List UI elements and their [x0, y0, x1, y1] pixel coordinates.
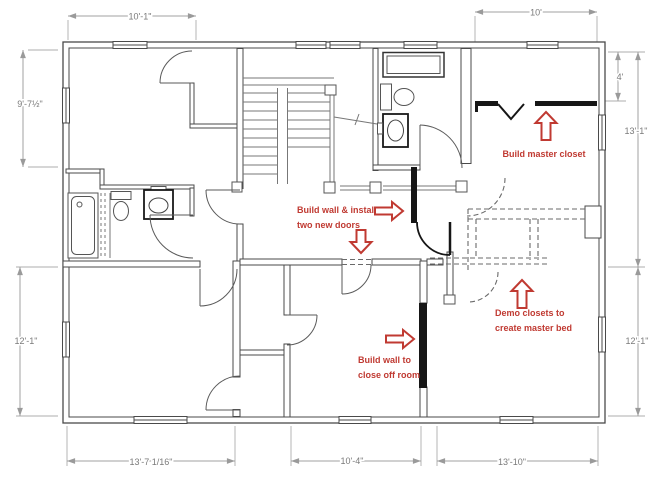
floor-plan-drawing: Build master closet Build wall & install… — [0, 0, 665, 482]
wall-post — [444, 295, 455, 304]
window — [527, 42, 558, 49]
dim-bottom-left: 13'-7 1/16" — [130, 457, 173, 467]
dim-right-upper: 13'-1" — [625, 126, 648, 136]
annotation-demo-closets-line1: Demo closets to — [495, 308, 565, 318]
new-wall-hall — [411, 167, 417, 223]
dim-right-lower: 12'-1" — [626, 336, 649, 346]
window — [63, 322, 70, 357]
newel-post — [324, 182, 335, 193]
annotation-new-wall-line1: Build wall & install — [297, 205, 377, 215]
window — [404, 42, 437, 49]
chimney — [585, 206, 601, 238]
floor-plan-page: Build master closet Build wall & install… — [0, 0, 665, 482]
window — [339, 417, 371, 424]
newel-post — [325, 85, 336, 95]
window — [63, 88, 70, 123]
new-wall-close-room — [419, 303, 427, 388]
window — [330, 42, 360, 49]
new-closet-wall — [475, 101, 498, 106]
dim-closet-depth: 4' — [617, 72, 624, 82]
annotation-new-wall-line2: two new doors — [297, 220, 360, 230]
bathtub — [68, 193, 98, 258]
window — [599, 115, 606, 150]
window — [296, 42, 326, 49]
window — [113, 42, 147, 49]
dim-left-upper: 9'-7½" — [17, 99, 42, 109]
dim-top-right: 10' — [530, 8, 542, 18]
dim-bottom-middle: 10'-4" — [341, 456, 364, 466]
annotation-close-room-line1: Build wall to — [358, 355, 412, 365]
window — [599, 317, 606, 352]
sink — [144, 187, 173, 220]
newel-post — [456, 181, 467, 192]
shower — [383, 53, 444, 78]
annotation-close-room-line2: close off room — [358, 370, 420, 380]
annotation-master-closet: Build master closet — [502, 149, 585, 159]
new-closet-wall — [535, 101, 597, 106]
dim-bottom-right: 13'-10" — [498, 457, 526, 467]
window — [500, 417, 533, 424]
newel-post — [370, 182, 381, 193]
dim-left-lower: 12'-1" — [15, 336, 38, 346]
window — [134, 417, 187, 424]
dim-top-left: 10'-1" — [129, 12, 152, 22]
annotation-demo-closets-line2: create master bed — [495, 323, 572, 333]
